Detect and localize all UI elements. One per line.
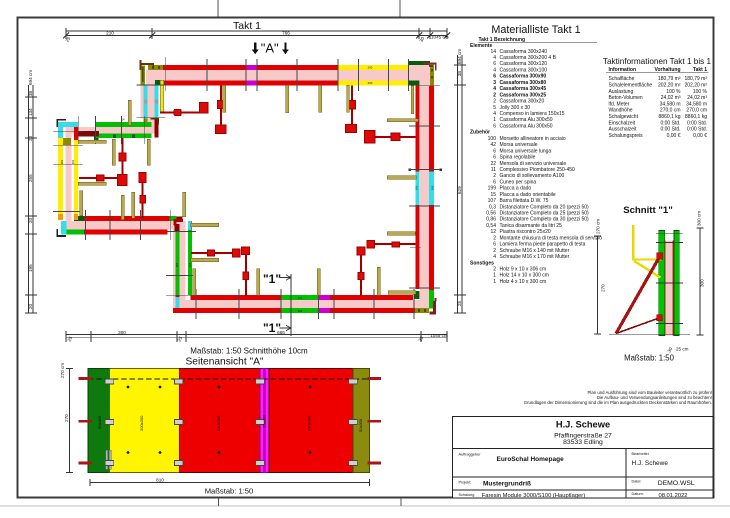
svg-text:2: 2 xyxy=(493,99,496,105)
svg-text:2: 2 xyxy=(493,248,496,254)
svg-text:0:00 Std.: 0:00 Std. xyxy=(687,127,707,133)
svg-text:38: 38 xyxy=(457,71,462,77)
svg-text:Taktinformationen Takt 1 bis: Taktinformationen Takt 1 bis 1 xyxy=(603,57,712,66)
svg-text:lfd. Meter: lfd. Meter xyxy=(609,101,630,107)
svg-text:Morsetto allineatore in acciai: Morsetto allineatore in acciaio xyxy=(500,136,566,142)
svg-text:Montante chiusura di testa men: Montante chiusura di testa mensola di se… xyxy=(500,235,603,241)
svg-text:2: 2 xyxy=(493,92,496,98)
svg-text:Grundlagen der Dimensionierung: Grundlagen der Dimensionierung sind die … xyxy=(524,400,712,405)
svg-text:Morsa universale lunga: Morsa universale lunga xyxy=(500,148,552,154)
svg-text:200x300: 200x300 xyxy=(139,415,144,431)
svg-text:1: 1 xyxy=(493,279,496,285)
svg-text:42: 42 xyxy=(490,142,496,148)
svg-text:38: 38 xyxy=(28,90,33,96)
svg-text:Auftraggeber: Auftraggeber xyxy=(459,453,482,457)
svg-text:20: 20 xyxy=(28,303,33,309)
svg-text:200: 200 xyxy=(298,309,303,313)
svg-text:Jolly 300 x 30: Jolly 300 x 30 xyxy=(500,105,531,111)
svg-text:Distanziatore Completo da 30 (: Distanziatore Completo da 30 (pezzi 50) xyxy=(500,217,590,223)
svg-text:Ausschalzeit: Ausschalzeit xyxy=(609,127,638,133)
svg-text:6: 6 xyxy=(493,74,496,80)
svg-text:EuroSchal Homepage: EuroSchal Homepage xyxy=(497,456,565,463)
svg-text:25: 25 xyxy=(457,300,462,306)
svg-text:14: 14 xyxy=(490,49,496,55)
svg-text:Schalfläche: Schalfläche xyxy=(609,76,635,82)
svg-text:Gancio di sollevamento A100: Gancio di sollevamento A100 xyxy=(500,173,565,179)
svg-text:6: 6 xyxy=(493,61,496,67)
svg-text:6: 6 xyxy=(493,148,496,154)
svg-text:Morsa universale: Morsa universale xyxy=(500,142,538,148)
svg-text:Cassaforma 300x80: Cassaforma 300x80 xyxy=(500,80,547,86)
svg-text:0,3: 0,3 xyxy=(489,204,496,210)
svg-text:Einschalzeit: Einschalzeit xyxy=(609,120,636,126)
svg-text:Projekt:: Projekt: xyxy=(459,481,472,485)
svg-text:Holz 14 x 10 x 300 cm: Holz 14 x 10 x 300 cm xyxy=(500,273,549,279)
svg-text:11: 11 xyxy=(491,167,496,173)
svg-text:240x300: 240x300 xyxy=(307,415,312,431)
svg-text:Schalungspreis: Schalungspreis xyxy=(609,133,644,139)
svg-text:810: 810 xyxy=(156,478,164,483)
svg-text:"A": "A" xyxy=(261,41,279,56)
svg-text:Information: Information xyxy=(609,67,637,73)
svg-text:"1": "1" xyxy=(263,321,281,335)
svg-text:Cuneo per spina: Cuneo per spina xyxy=(500,179,537,185)
svg-text:Seitenansicht "A": Seitenansicht "A" xyxy=(185,357,263,368)
svg-text:Cassaforma 300x120: Cassaforma 300x120 xyxy=(500,61,548,67)
svg-text:20: 20 xyxy=(28,135,33,141)
svg-text:200: 200 xyxy=(71,159,75,164)
svg-text:Wandhöhe: Wandhöhe xyxy=(609,108,633,114)
svg-text:Vorhaltung: Vorhaltung xyxy=(654,67,680,73)
svg-text:Maßstab: 1:50: Maßstab: 1:50 xyxy=(624,354,675,363)
svg-text:270,0 cm: 270,0 cm xyxy=(686,108,707,114)
svg-text:4: 4 xyxy=(493,254,496,260)
svg-text:200: 200 xyxy=(60,159,64,164)
svg-text:25x300: 25x300 xyxy=(262,414,267,428)
svg-text:100: 100 xyxy=(415,185,419,190)
svg-text:2: 2 xyxy=(493,173,496,179)
svg-text:Materialliste Takt 1: Materialliste Takt 1 xyxy=(491,24,580,36)
svg-text:14: 14 xyxy=(121,118,125,122)
svg-text:H.J. Schewe: H.J. Schewe xyxy=(632,460,669,467)
svg-text:Tanica disarmante da litri 25: Tanica disarmante da litri 25 xyxy=(500,223,562,229)
svg-text:4: 4 xyxy=(493,111,496,117)
svg-text:202,20 m²: 202,20 m² xyxy=(684,83,707,89)
svg-text:0:00 Std.: 0:00 Std. xyxy=(660,127,680,133)
svg-text:Maßstab: 1:50: Maßstab: 1:50 xyxy=(205,487,254,496)
svg-text:240x300: 240x300 xyxy=(216,415,221,431)
svg-text:Maßstab: 1:50 Schnitthöhe 1: Maßstab: 1:50 Schnitthöhe 10cm xyxy=(190,347,308,356)
svg-text:Faresin Module 3000/S100 (Haup: Faresin Module 3000/S100 (Hauptlager) xyxy=(482,493,586,499)
svg-text:200: 200 xyxy=(368,81,373,85)
svg-text:250: 250 xyxy=(175,262,179,267)
svg-text:100: 100 xyxy=(488,136,497,142)
svg-text:Datum:: Datum: xyxy=(632,492,644,496)
svg-text:Holz 4 x 10 x 300 cm: Holz 4 x 10 x 300 cm xyxy=(500,279,547,285)
svg-text:Distanziatore Completo da 25 (: Distanziatore Completo da 25 (pezzi 50) xyxy=(500,211,590,217)
svg-text:Spina regolabile: Spina regolabile xyxy=(500,155,536,161)
svg-text:200: 200 xyxy=(298,296,303,300)
svg-text:270 cm: 270 cm xyxy=(596,219,601,234)
svg-text:Schnitt "1": Schnitt "1" xyxy=(623,205,673,216)
svg-text:2: 2 xyxy=(493,267,496,273)
svg-text:134: 134 xyxy=(28,108,33,116)
svg-text:202,20 m²: 202,20 m² xyxy=(658,83,681,89)
svg-text:0,00 €: 0,00 € xyxy=(693,133,707,139)
svg-text:60x300: 60x300 xyxy=(97,415,102,429)
svg-text:24,02 m³: 24,02 m³ xyxy=(687,95,707,101)
svg-text:6: 6 xyxy=(493,155,496,161)
svg-text:8860,1 kg: 8860,1 kg xyxy=(659,114,681,120)
svg-text:Compenso in lamiera 150x15: Compenso in lamiera 150x15 xyxy=(500,111,565,117)
svg-text:Schalung: Schalung xyxy=(459,493,475,497)
svg-text:1: 1 xyxy=(493,273,496,279)
svg-text:0:00 Std.: 0:00 Std. xyxy=(660,120,680,126)
svg-text:4: 4 xyxy=(493,86,496,92)
svg-text:83533 Edling: 83533 Edling xyxy=(563,439,603,446)
svg-text:Cassaforma 300x20: Cassaforma 300x20 xyxy=(500,99,545,105)
svg-text:Cassaforma Alu 300x50: Cassaforma Alu 300x50 xyxy=(500,123,553,129)
svg-text:766: 766 xyxy=(282,31,290,36)
svg-text:Complessivo Piombatore 250-450: Complessivo Piombatore 250-450 xyxy=(500,167,576,173)
svg-text:20: 20 xyxy=(28,217,33,223)
svg-text:50x300: 50x300 xyxy=(358,418,363,432)
svg-text:Cassaforma 300x100: Cassaforma 300x100 xyxy=(500,68,548,74)
svg-text:Takt 1: Takt 1 xyxy=(233,20,261,32)
svg-text:15: 15 xyxy=(490,192,496,198)
svg-text:107: 107 xyxy=(488,198,497,204)
svg-text:Piastra riscontro 25x20: Piastra riscontro 25x20 xyxy=(500,229,551,235)
svg-text:200: 200 xyxy=(368,66,373,70)
svg-text:694 cm: 694 cm xyxy=(28,70,33,85)
svg-text:DEMO.WSL: DEMO.WSL xyxy=(658,480,695,487)
svg-text:"1": "1" xyxy=(263,272,281,286)
svg-text:Takt 1: Takt 1 xyxy=(693,67,707,73)
svg-text:22: 22 xyxy=(490,161,496,167)
svg-text:Zubehör: Zubehör xyxy=(470,130,490,136)
svg-text:629: 629 xyxy=(457,186,462,194)
svg-text:0,86: 0,86 xyxy=(486,217,496,223)
svg-text:0,54: 0,54 xyxy=(486,223,496,229)
svg-text:300: 300 xyxy=(700,279,705,287)
svg-text:Auslastung: Auslastung xyxy=(609,89,634,95)
svg-text:Schraube M16 x 140 mit Mutter: Schraube M16 x 140 mit Mutter xyxy=(500,248,570,254)
svg-text:Schalelementfläche: Schalelementfläche xyxy=(609,83,653,89)
svg-text:270,0 cm: 270,0 cm xyxy=(660,108,681,114)
svg-text:270 cm: 270 cm xyxy=(60,363,65,378)
svg-text:Cassaforma 300x45: Cassaforma 300x45 xyxy=(500,86,547,92)
svg-text:255: 255 xyxy=(28,174,33,182)
svg-text:270: 270 xyxy=(601,284,606,292)
svg-text:1: 1 xyxy=(493,117,496,123)
svg-text:2: 2 xyxy=(493,235,496,241)
svg-text:Elemente: Elemente xyxy=(470,43,492,49)
svg-text:Bearbeiter: Bearbeiter xyxy=(632,452,650,456)
svg-text:Datei:: Datei: xyxy=(632,480,642,484)
svg-text:34,580 m: 34,580 m xyxy=(660,101,681,107)
svg-text:100 %: 100 % xyxy=(666,89,681,95)
svg-text:24,02 m³: 24,02 m³ xyxy=(661,95,681,101)
svg-text:8860,1 kg: 8860,1 kg xyxy=(685,114,707,120)
svg-text:0:00 Std.: 0:00 Std. xyxy=(687,120,707,126)
svg-text:Cassaforma 300x25: Cassaforma 300x25 xyxy=(500,92,547,98)
svg-text:Schraube M16 x 170 mit Mutter: Schraube M16 x 170 mit Mutter xyxy=(500,254,570,260)
svg-text:25 cm: 25 cm xyxy=(676,347,689,352)
svg-text:180,79 m²: 180,79 m² xyxy=(658,76,681,82)
svg-text:Placca a dado: Placca a dado xyxy=(500,186,532,192)
svg-text:Holz 9 x 10 x 306 cm: Holz 9 x 10 x 306 cm xyxy=(500,267,547,273)
svg-text:Cassaforma 300x90: Cassaforma 300x90 xyxy=(500,74,547,80)
svg-text:210: 210 xyxy=(106,31,114,36)
svg-text:Barra filettata D.W. 75: Barra filettata D.W. 75 xyxy=(500,198,549,204)
svg-text:Lamiera ferma piede parapetto: Lamiera ferma piede parapetto di testa xyxy=(500,242,586,248)
svg-text:199: 199 xyxy=(488,186,497,192)
svg-text:08.01.2022: 08.01.2022 xyxy=(659,493,688,499)
svg-text:250: 250 xyxy=(188,262,192,267)
svg-text:100 %: 100 % xyxy=(693,89,708,95)
svg-text:5: 5 xyxy=(493,105,496,111)
svg-text:100: 100 xyxy=(430,185,434,190)
svg-text:1045 cm: 1045 cm xyxy=(431,35,449,40)
svg-text:H.J. Schewe: H.J. Schewe xyxy=(556,420,610,430)
svg-text:1045 cm: 1045 cm xyxy=(430,333,448,338)
svg-text:4: 4 xyxy=(493,55,496,61)
svg-text:34,580 m: 34,580 m xyxy=(686,101,707,107)
svg-text:180,79 m²: 180,79 m² xyxy=(684,76,707,82)
svg-text:300 cm: 300 cm xyxy=(697,211,702,226)
svg-text:12: 12 xyxy=(490,229,496,235)
svg-text:0,00 €: 0,00 € xyxy=(667,133,681,139)
svg-text:6: 6 xyxy=(493,242,496,248)
svg-text:Distanziatore Completo da 20 (: Distanziatore Completo da 20 (pezzi 50) xyxy=(500,204,590,210)
svg-text:270: 270 xyxy=(64,414,69,422)
svg-text:Schalgewicht: Schalgewicht xyxy=(609,114,639,120)
svg-text:Beton-Volumen: Beton-Volumen xyxy=(609,95,643,101)
svg-text:Cassaforma Alu 300x50: Cassaforma Alu 300x50 xyxy=(500,117,553,123)
svg-text:Mustergrundriß: Mustergrundriß xyxy=(483,481,531,488)
svg-text:Mensola di servizio universale: Mensola di servizio universale xyxy=(500,161,567,167)
svg-text:6: 6 xyxy=(493,123,496,129)
svg-text:4: 4 xyxy=(493,68,496,74)
svg-text:3: 3 xyxy=(493,80,496,86)
svg-text:195: 195 xyxy=(28,264,33,272)
svg-text:Sonstiges: Sonstiges xyxy=(470,260,494,266)
svg-text:Cassaforma 300x240: Cassaforma 300x240 xyxy=(500,49,548,55)
svg-text:300: 300 xyxy=(118,330,126,335)
svg-text:0,56: 0,56 xyxy=(486,211,496,217)
svg-text:Cassaforma 300x200 4 B: Cassaforma 300x200 4 B xyxy=(500,55,557,61)
svg-text:6: 6 xyxy=(493,179,496,185)
svg-text:Placca a dado orientabile: Placca a dado orientabile xyxy=(500,192,556,198)
svg-text:694 cm: 694 cm xyxy=(457,49,462,64)
